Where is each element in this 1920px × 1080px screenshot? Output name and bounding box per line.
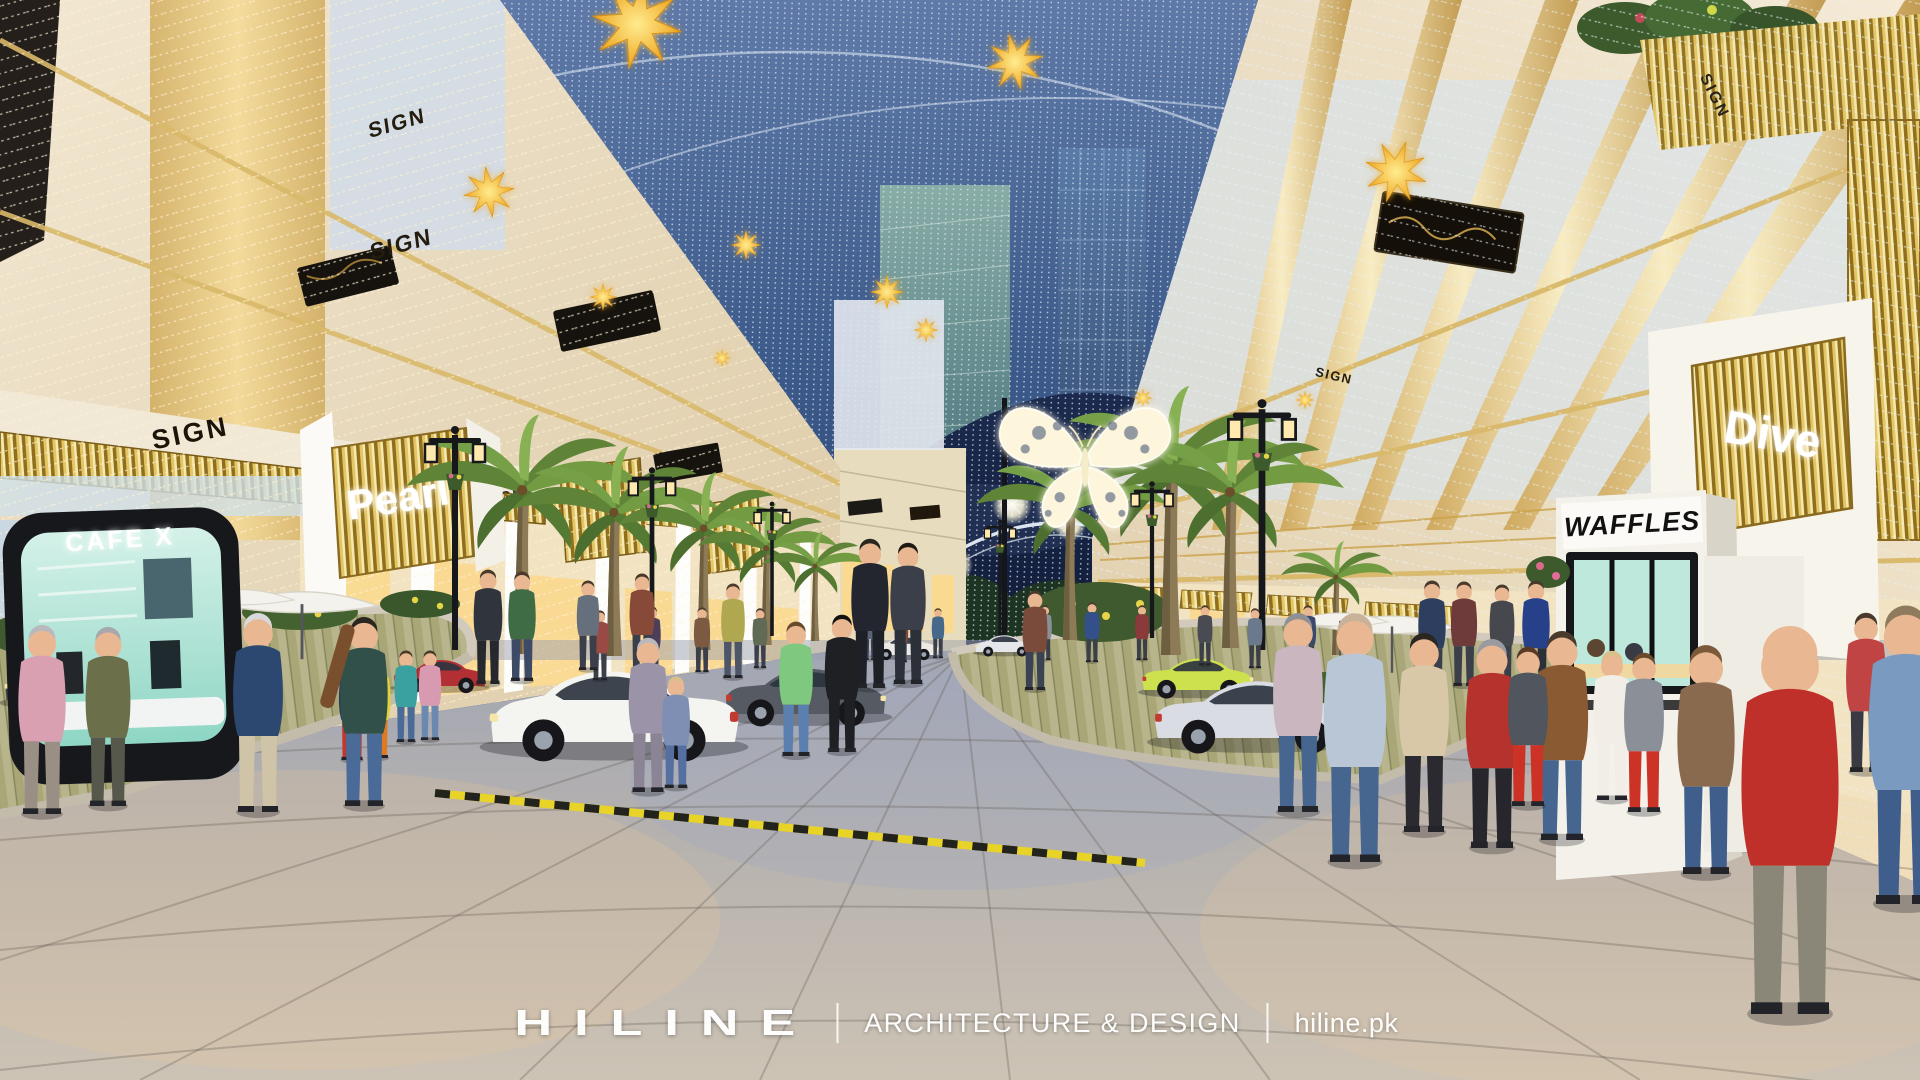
brand-website: hiline.pk [1295, 1008, 1399, 1039]
star-icon [914, 318, 938, 342]
architectural-render: SIGN SIGN SIGN SIGN Pearl [0, 0, 1920, 1080]
separator-bar [836, 1003, 838, 1043]
star-icon [871, 276, 904, 309]
star-icon [714, 350, 731, 367]
scene-canvas: SIGN SIGN SIGN SIGN Pearl [0, 0, 1920, 1080]
star-icon [1134, 389, 1152, 407]
brand-logo: HILINE [457, 1002, 876, 1044]
star-icon [590, 284, 617, 311]
separator-bar [1267, 1003, 1269, 1043]
star-icon [1296, 391, 1314, 409]
watermark: HILINE ARCHITECTURE & DESIGN hiline.pk [521, 1002, 1398, 1044]
brand-tagline: ARCHITECTURE & DESIGN [864, 1008, 1240, 1039]
star-icon [731, 230, 761, 260]
